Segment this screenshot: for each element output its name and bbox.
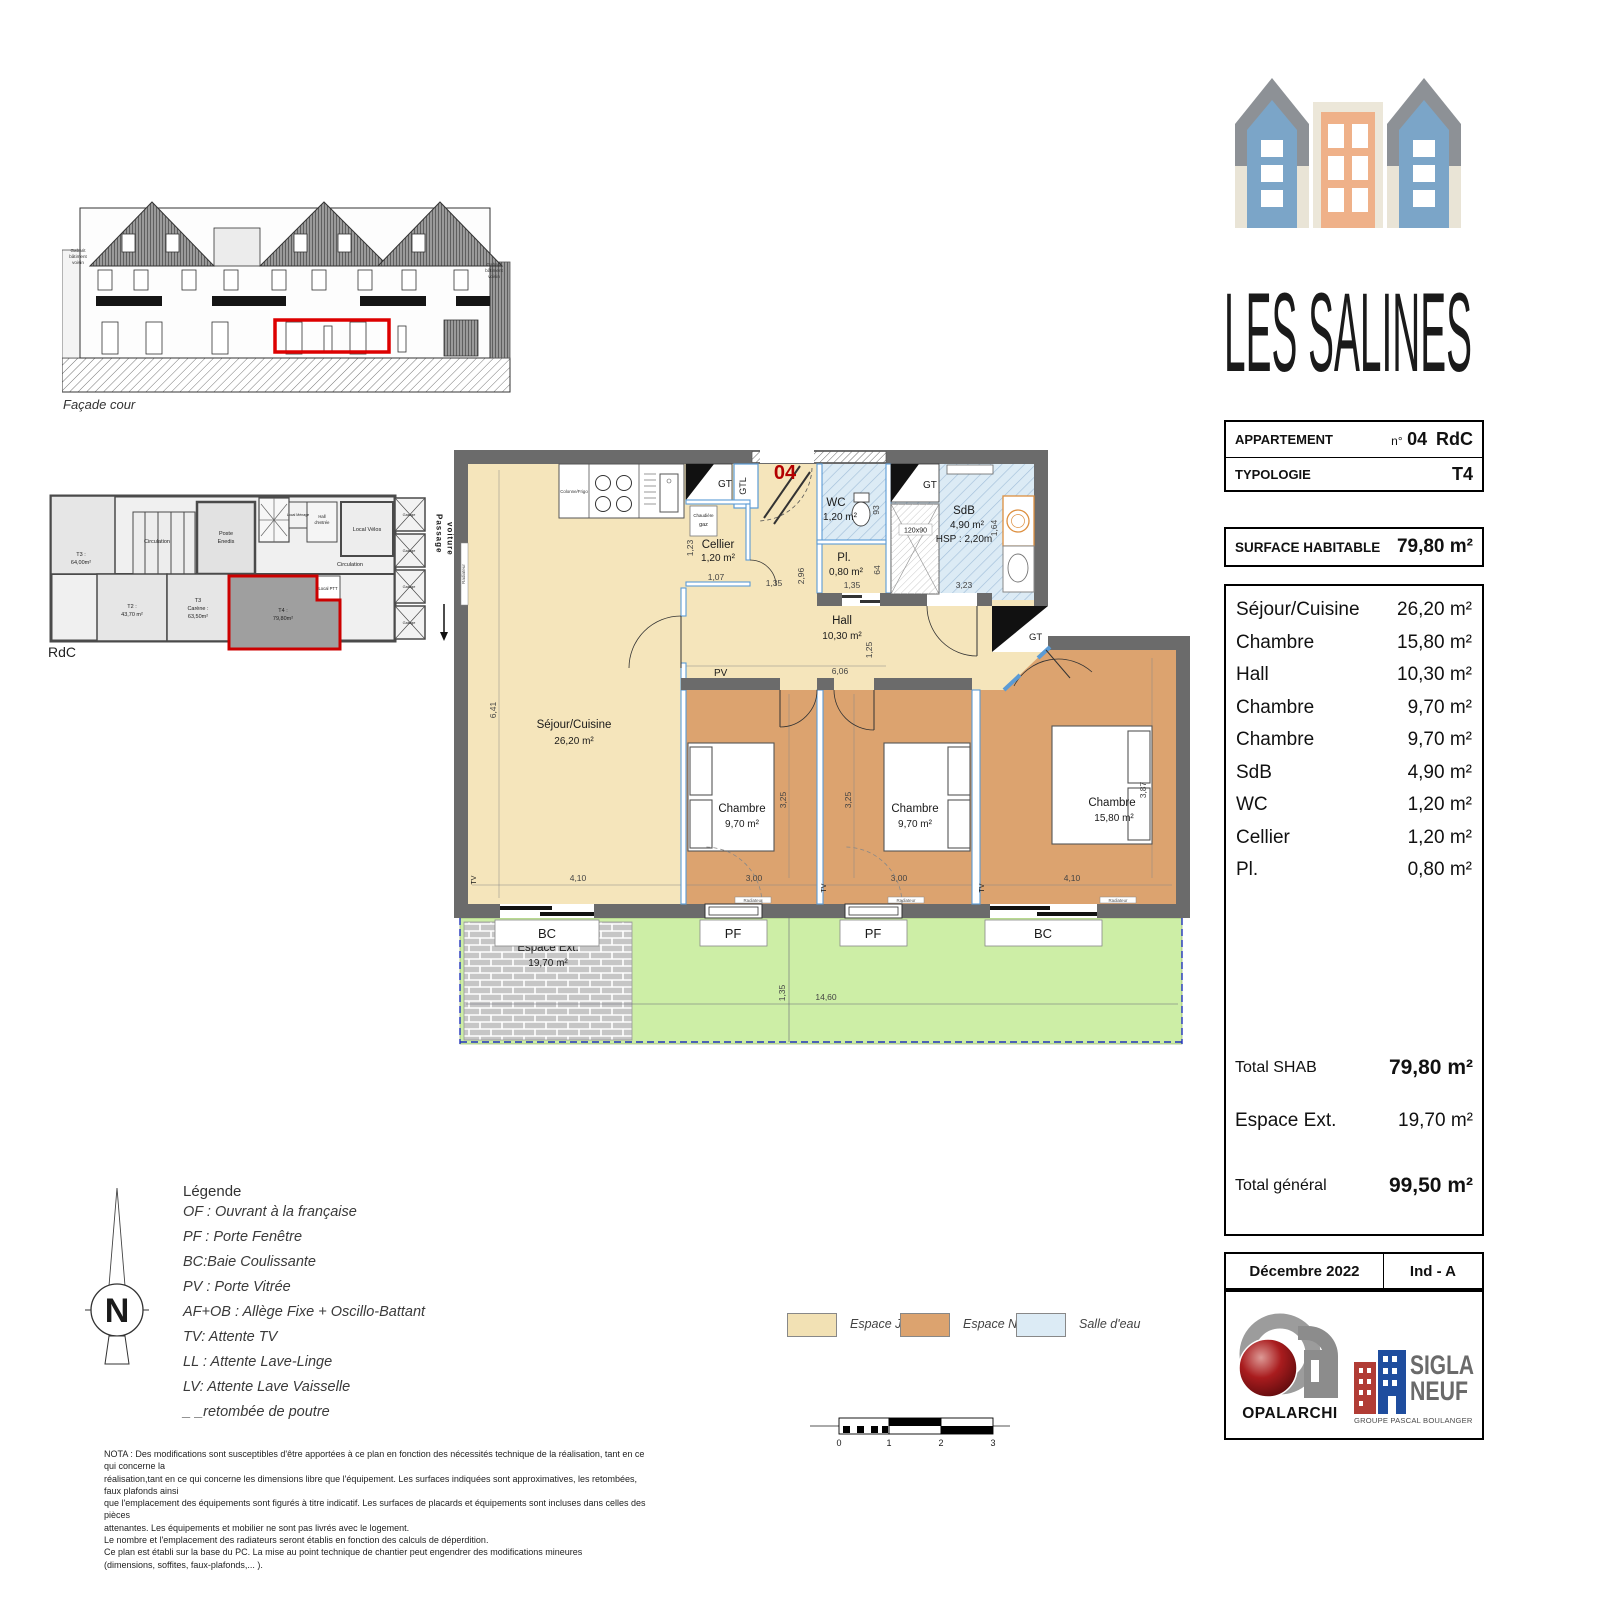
svg-text:14,60: 14,60 [815, 992, 837, 1002]
svg-text:WC: WC [826, 497, 845, 509]
facade-ground [62, 358, 510, 392]
svg-text:BC: BC [1034, 926, 1052, 941]
apartment-label: APPARTEMENT [1235, 432, 1333, 447]
window-bc-1: BC [495, 904, 599, 946]
svg-text:Poste: Poste [219, 531, 233, 537]
svg-text:64: 64 [872, 565, 882, 575]
svg-text:GTL: GTL [738, 477, 748, 495]
keyplan-garages [395, 498, 425, 639]
svg-text:T3: T3 [195, 598, 201, 604]
svg-text:1,35: 1,35 [766, 578, 783, 588]
logo-title: LES SALINES [1224, 270, 1472, 386]
svg-text:T3 :: T3 : [76, 552, 86, 558]
svg-text:0: 0 [836, 1438, 841, 1448]
date-index-box: Décembre 2022 Ind - A [1224, 1252, 1484, 1290]
svg-text:Circulation: Circulation [144, 539, 170, 545]
svg-text:19,70 m²: 19,70 m² [528, 958, 568, 969]
facade-gabarit-left-label: Gabarit bâtiment voisin [64, 248, 92, 266]
svg-text:1: 1 [886, 1438, 891, 1448]
room-list-row: Chambre9,70 m² [1226, 692, 1482, 725]
svg-text:Pl.: Pl. [837, 552, 850, 564]
svg-text:T4 :: T4 : [278, 608, 288, 614]
svg-text:15,80 m²: 15,80 m² [1094, 813, 1134, 824]
legend-title: Légende [183, 1183, 425, 1200]
svg-text:NEUF: NEUF [1410, 1376, 1468, 1406]
facade-caption: Façade cour [63, 397, 135, 412]
svg-text:1,35: 1,35 [844, 580, 861, 590]
svg-text:Radiateur: Radiateur [743, 898, 763, 903]
apartment-floor-value: RdC [1436, 429, 1473, 449]
passage-arrow [440, 632, 448, 641]
total-general: Total général 99,50 m² [1226, 1174, 1482, 1198]
sigla-neuf-logo: SIGLA NEUF GROUPE PASCAL BOULANGER [1352, 1326, 1480, 1426]
svg-text:Colonne/Frigo: Colonne/Frigo [560, 489, 588, 494]
total-shab: Total SHAB 79,80 m² [1226, 1056, 1482, 1080]
room-list-row: Hall10,30 m² [1226, 659, 1482, 692]
svg-text:3,87: 3,87 [1138, 781, 1148, 798]
svg-text:3: 3 [990, 1438, 995, 1448]
svg-text:9,70 m²: 9,70 m² [725, 819, 760, 830]
apartment-number-value: 04 [1407, 429, 1427, 449]
svg-text:TV: TV [979, 883, 986, 892]
svg-text:6,06: 6,06 [832, 666, 849, 676]
date-value: Décembre 2022 [1226, 1254, 1384, 1288]
north-letter: N [105, 1292, 130, 1330]
svg-text:93: 93 [871, 505, 881, 515]
svg-text:1,25: 1,25 [864, 641, 874, 658]
rooms-list-box: Séjour/Cuisine26,20 m² Chambre15,80 m² H… [1224, 584, 1484, 1236]
svg-text:9,70 m²: 9,70 m² [898, 819, 933, 830]
scale-bar: 0 1 2 3 [805, 1398, 1015, 1453]
pv-label: PV [714, 668, 728, 679]
north-compass: N [85, 1186, 151, 1372]
keyplan-passage-voiture: Passage [435, 514, 444, 553]
svg-text:1,35: 1,35 [777, 984, 787, 1001]
svg-text:GT: GT [718, 479, 732, 490]
balcony-rail [96, 296, 162, 306]
svg-text:79,80m²: 79,80m² [273, 616, 293, 622]
svg-text:Chambre: Chambre [718, 803, 765, 815]
svg-text:0,80 m²: 0,80 m² [829, 567, 864, 578]
chaudiere-gaz-icon [690, 506, 717, 536]
svg-text:3,25: 3,25 [843, 791, 853, 808]
svg-text:Circulation: Circulation [337, 562, 363, 568]
shower-icon: 120x90 [891, 504, 939, 594]
room-list-row: Chambre15,80 m² [1226, 627, 1482, 660]
les-salines-logo: LES SALINES [1222, 66, 1474, 386]
apartment-info-table: APPARTEMENT n° 04 RdC TYPOLOGIE T4 [1224, 420, 1484, 492]
opalarchi-logo: OPALARCHI [1234, 1308, 1346, 1424]
svg-text:PF: PF [725, 926, 742, 941]
svg-text:d'entrée: d'entrée [314, 520, 330, 525]
sejour-label: Séjour/Cuisine [537, 719, 612, 731]
svg-text:3,00: 3,00 [891, 873, 908, 883]
svg-text:TV: TV [821, 883, 828, 892]
svg-text:BC: BC [538, 926, 556, 941]
nota-block: NOTA : Des modifications sont susceptibl… [104, 1448, 649, 1571]
room-list-row: Pl.0,80 m² [1226, 854, 1482, 887]
svg-text:OPALARCHI: OPALARCHI [1242, 1405, 1338, 1422]
svg-text:Carène :: Carène : [187, 606, 209, 612]
svg-text:1,20 m²: 1,20 m² [823, 512, 858, 523]
svg-text:Local Vélos: Local Vélos [353, 527, 382, 533]
washbasin-icon [1003, 546, 1034, 592]
svg-text:GT: GT [1029, 632, 1042, 643]
svg-text:Garage: Garage [403, 585, 416, 589]
svg-text:4,90 m²: 4,90 m² [950, 520, 985, 531]
svg-text:Radiateur: Radiateur [1108, 898, 1128, 903]
svg-text:Garage: Garage [403, 549, 416, 553]
svg-text:Local PTT: Local PTT [318, 586, 338, 591]
logo-house-right [1387, 78, 1461, 228]
room-list-row: WC1,20 m² [1226, 789, 1482, 822]
floor-plan: Espace Ext. 19,70 m² 1,35 14,60 [452, 448, 1192, 1048]
svg-text:Radiateur: Radiateur [461, 564, 466, 584]
svg-text:Garage: Garage [403, 621, 416, 625]
svg-text:Chambre: Chambre [891, 803, 938, 815]
svg-text:4,10: 4,10 [570, 873, 587, 883]
room-list-row: SdB4,90 m² [1226, 757, 1482, 790]
logos-box: OPALARCHI SIGLA NEUF GROUPE PASCAL BOULA… [1224, 1290, 1484, 1440]
room-list-row: Cellier1,20 m² [1226, 822, 1482, 855]
svg-text:26,20 m²: 26,20 m² [554, 736, 594, 747]
svg-text:2: 2 [938, 1438, 943, 1448]
salle-eau-swatch [1016, 1313, 1066, 1337]
logo-building-middle [1313, 102, 1383, 228]
svg-text:GT: GT [923, 480, 937, 491]
svg-text:4,10: 4,10 [1064, 873, 1081, 883]
svg-text:64,00m²: 64,00m² [71, 560, 91, 566]
svg-text:43,70 m²: 43,70 m² [121, 612, 143, 618]
svg-text:120x90: 120x90 [904, 528, 927, 535]
svg-text:PF: PF [865, 926, 882, 941]
facade-elevation [62, 170, 512, 398]
svg-text:10,30 m²: 10,30 m² [822, 631, 862, 642]
svg-text:GROUPE PASCAL BOULANGER: GROUPE PASCAL BOULANGER [1354, 1416, 1473, 1425]
svg-text:1,64: 1,64 [989, 519, 999, 536]
typology-value: T4 [1452, 464, 1473, 485]
svg-text:63,50m²: 63,50m² [188, 614, 208, 620]
bed-icon [688, 726, 1152, 851]
svg-text:1,07: 1,07 [708, 572, 725, 582]
room-list-row: Chambre9,70 m² [1226, 724, 1482, 757]
tv-label: TV [471, 875, 478, 884]
svg-text:6,41: 6,41 [488, 701, 498, 718]
espace-jour-swatch [787, 1313, 837, 1337]
espace-nuit-swatch [900, 1313, 950, 1337]
keyplan-stairs [259, 498, 289, 542]
plan-sheet: Gabarit bâtiment voisin Gabarit bâtiment… [0, 0, 1600, 1600]
room-sejour [468, 464, 681, 904]
total-espace-ext: Espace Ext. 19,70 m² [1226, 1110, 1482, 1132]
svg-text:1,23: 1,23 [685, 539, 695, 556]
svg-text:Radiateur: Radiateur [896, 898, 916, 903]
washing-machine-icon [1003, 496, 1034, 546]
surface-habitable-box: SURFACE HABITABLE 79,80 m² [1224, 527, 1484, 567]
svg-text:Cellier: Cellier [702, 539, 735, 551]
svg-text:Chaudière: Chaudière [693, 513, 714, 518]
svg-text:Hall: Hall [318, 514, 325, 519]
legend-block: Légende OF : Ouvrant à la française PF :… [183, 1183, 425, 1425]
svg-text:1,20 m²: 1,20 m² [701, 553, 736, 564]
svg-text:HSP : 2,20m: HSP : 2,20m [936, 534, 993, 545]
apartment-number: 04 [774, 462, 797, 484]
typology-label: TYPOLOGIE [1235, 467, 1311, 482]
kitchen-counter: Colonne/Frigo [559, 464, 684, 518]
svg-text:Hall: Hall [832, 615, 852, 627]
window-bc-2: BC [985, 904, 1102, 946]
keyplan-caption: RdC [48, 644, 76, 660]
opalarchi-sphere [1239, 1339, 1297, 1397]
svg-text:Local Ménage: Local Ménage [287, 513, 310, 517]
surface-habitable-value: 79,80 m² [1397, 536, 1473, 558]
svg-text:Garage: Garage [403, 513, 416, 517]
svg-text:gaz: gaz [699, 522, 708, 528]
svg-text:T2 :: T2 : [127, 604, 137, 610]
logo-house-left [1235, 78, 1309, 228]
svg-text:SdB: SdB [953, 505, 975, 517]
facade-gabarit-right-label: Gabarit bâtiment voisin [480, 262, 508, 280]
room-list-row: Séjour/Cuisine26,20 m² [1226, 594, 1482, 627]
svg-text:Enedis: Enedis [218, 539, 235, 545]
svg-text:3,23: 3,23 [956, 580, 973, 590]
index-value: Ind - A [1384, 1254, 1482, 1288]
svg-text:2,96: 2,96 [796, 567, 806, 584]
svg-text:Chambre: Chambre [1088, 797, 1135, 809]
keyplan-rdc: T3 : 64,00m² Circulation Poste Enedis Ha… [45, 486, 465, 658]
keyplan-poste-enedis [197, 502, 255, 574]
svg-text:3,25: 3,25 [778, 791, 788, 808]
